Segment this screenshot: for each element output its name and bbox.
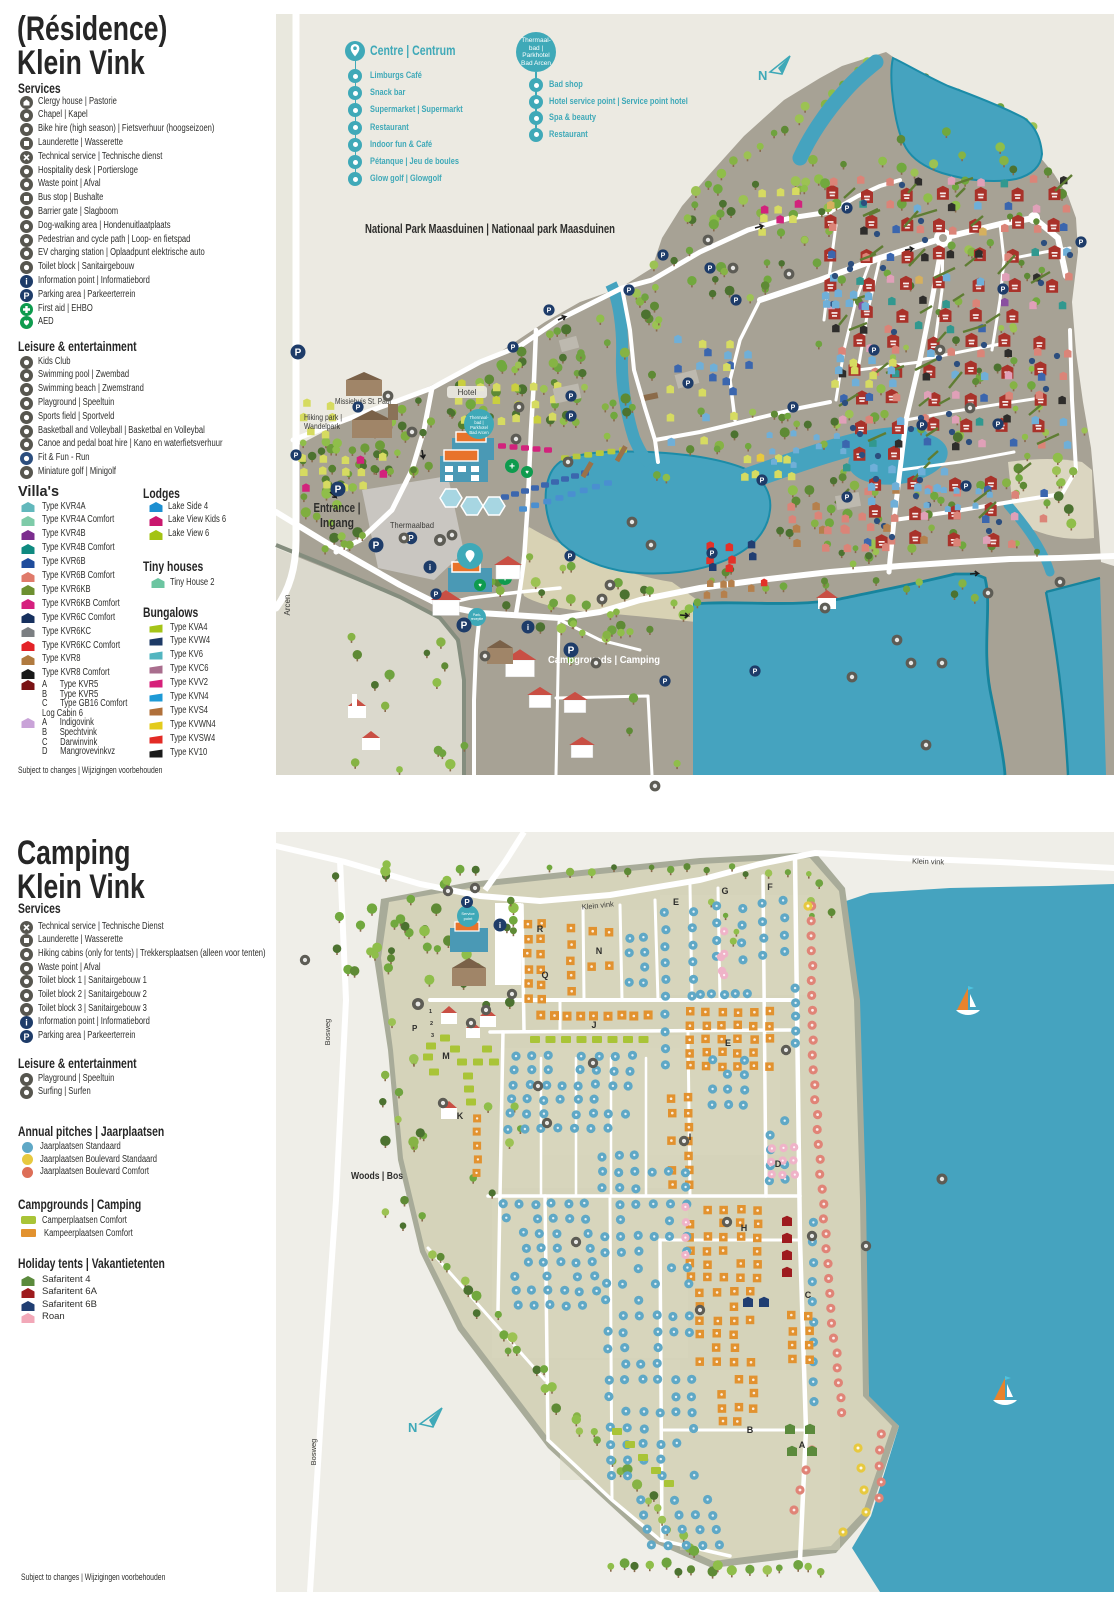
svg-text:P: P bbox=[920, 423, 925, 430]
svg-text:Hiking park |: Hiking park | bbox=[304, 413, 342, 422]
svg-text:E: E bbox=[725, 1038, 731, 1048]
svg-text:R: R bbox=[537, 924, 544, 934]
svg-text:P: P bbox=[734, 298, 739, 305]
svg-text:i: i bbox=[527, 623, 529, 632]
svg-text:Missiehuis St. Paul: Missiehuis St. Paul bbox=[335, 397, 391, 406]
svg-text:P: P bbox=[464, 898, 470, 907]
svg-text:P: P bbox=[412, 1024, 418, 1033]
svg-text:P: P bbox=[356, 405, 361, 412]
svg-text:H: H bbox=[741, 1223, 748, 1233]
svg-text:P: P bbox=[1079, 240, 1084, 247]
svg-text:P: P bbox=[461, 621, 468, 632]
svg-text:♥: ♥ bbox=[525, 470, 529, 476]
svg-text:P: P bbox=[568, 554, 573, 561]
svg-text:G: G bbox=[721, 886, 728, 896]
svg-text:P: P bbox=[872, 348, 877, 355]
svg-text:P: P bbox=[373, 541, 380, 552]
svg-text:P: P bbox=[335, 485, 342, 496]
svg-text:P: P bbox=[996, 422, 1001, 429]
svg-text:M: M bbox=[442, 1051, 450, 1061]
svg-text:J: J bbox=[591, 1020, 596, 1030]
svg-text:Bosweg: Bosweg bbox=[309, 1439, 318, 1466]
svg-text:P: P bbox=[710, 551, 715, 558]
svg-text:♥: ♥ bbox=[478, 583, 482, 589]
svg-text:P: P bbox=[568, 646, 575, 657]
svg-text:A: A bbox=[799, 1440, 806, 1450]
svg-text:P: P bbox=[663, 679, 668, 686]
svg-text:P: P bbox=[1001, 287, 1006, 294]
svg-text:P: P bbox=[627, 288, 632, 295]
svg-text:i: i bbox=[429, 563, 431, 572]
svg-text:+: + bbox=[509, 462, 515, 473]
svg-text:receptie: receptie bbox=[471, 617, 484, 621]
svg-text:K: K bbox=[457, 1111, 464, 1121]
svg-text:1: 1 bbox=[429, 1009, 432, 1015]
svg-text:N: N bbox=[596, 946, 603, 956]
svg-text:P: P bbox=[845, 206, 850, 213]
svg-text:F: F bbox=[767, 882, 773, 892]
svg-text:Hotel: Hotel bbox=[458, 388, 477, 397]
svg-text:National Park Maasduinen | Nat: National Park Maasduinen | Nationaal par… bbox=[365, 222, 615, 236]
svg-text:P: P bbox=[295, 348, 302, 359]
svg-text:C: C bbox=[805, 1290, 812, 1300]
svg-text:P: P bbox=[791, 405, 796, 412]
svg-text:Bosweg: Bosweg bbox=[323, 1019, 332, 1046]
svg-text:Arcen: Arcen bbox=[283, 595, 292, 616]
svg-text:P: P bbox=[661, 253, 666, 260]
svg-text:P: P bbox=[686, 381, 691, 388]
svg-text:E: E bbox=[673, 897, 679, 907]
svg-text:D: D bbox=[775, 1159, 782, 1169]
svg-text:i: i bbox=[499, 921, 501, 930]
svg-text:Bad Arcen: Bad Arcen bbox=[469, 430, 489, 435]
svg-text:3: 3 bbox=[431, 1033, 434, 1039]
svg-text:P: P bbox=[547, 308, 552, 315]
svg-text:P: P bbox=[511, 345, 516, 352]
svg-text:P: P bbox=[760, 478, 765, 485]
svg-text:P: P bbox=[569, 394, 574, 401]
svg-text:P: P bbox=[964, 484, 969, 491]
svg-text:Wandelpark: Wandelpark bbox=[304, 422, 341, 431]
svg-text:P: P bbox=[23, 1032, 29, 1042]
svg-text:P: P bbox=[845, 495, 850, 502]
svg-text:i: i bbox=[25, 1018, 28, 1028]
svg-text:Campgrounds | Camping: Campgrounds | Camping bbox=[548, 655, 660, 666]
svg-text:Ingang: Ingang bbox=[320, 516, 354, 530]
svg-text:P: P bbox=[569, 414, 574, 421]
svg-text:Q: Q bbox=[541, 970, 548, 980]
svg-text:P: P bbox=[23, 290, 29, 300]
svg-text:Entrance |: Entrance | bbox=[314, 501, 361, 515]
svg-text:B: B bbox=[747, 1425, 754, 1435]
svg-text:2: 2 bbox=[430, 1021, 433, 1027]
svg-text:P: P bbox=[294, 453, 299, 460]
svg-text:Klein vink: Klein vink bbox=[912, 856, 945, 866]
svg-text:i: i bbox=[25, 276, 28, 286]
svg-text:Woods | Bos: Woods | Bos bbox=[351, 1171, 403, 1182]
svg-text:P: P bbox=[753, 669, 758, 676]
svg-text:P: P bbox=[434, 592, 439, 599]
svg-text:point: point bbox=[464, 916, 474, 921]
svg-text:P: P bbox=[708, 266, 713, 273]
svg-text:N: N bbox=[758, 68, 767, 83]
svg-text:Thermaalbad: Thermaalbad bbox=[390, 520, 434, 530]
svg-text:N: N bbox=[408, 1420, 417, 1435]
